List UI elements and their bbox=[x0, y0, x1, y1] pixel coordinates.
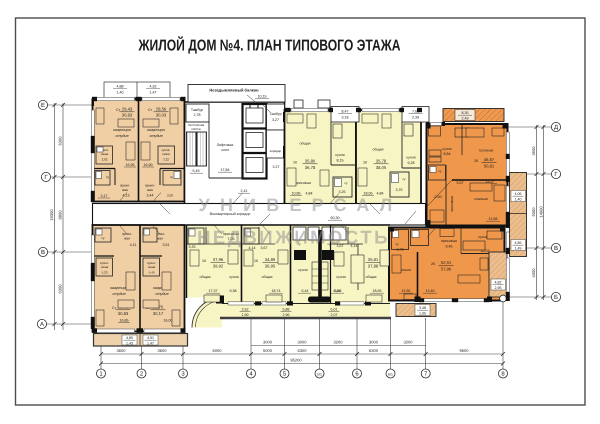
svg-text:1,05: 1,05 bbox=[419, 312, 426, 316]
svg-text:28,56: 28,56 bbox=[156, 107, 167, 112]
svg-text:30,83: 30,83 bbox=[122, 113, 133, 118]
svg-text:ниша: ниша bbox=[101, 152, 109, 156]
svg-text:Д: Д bbox=[554, 124, 558, 131]
svg-text:Тамбур: Тамбур bbox=[269, 112, 281, 116]
svg-text:17,37: 17,37 bbox=[209, 289, 218, 293]
svg-text:3,44: 3,44 bbox=[147, 194, 154, 198]
svg-text:5,07: 5,07 bbox=[457, 181, 464, 185]
svg-text:46,87: 46,87 bbox=[484, 157, 495, 162]
svg-text:30,17: 30,17 bbox=[153, 311, 164, 316]
svg-text:3000: 3000 bbox=[369, 340, 379, 345]
svg-text:5000: 5000 bbox=[263, 348, 273, 353]
svg-text:кухня: кухня bbox=[442, 147, 451, 151]
svg-text:кухня: кухня bbox=[336, 275, 345, 279]
svg-text:2,49: 2,49 bbox=[462, 117, 469, 121]
svg-text:2,41: 2,41 bbox=[241, 189, 248, 193]
svg-text:29,43: 29,43 bbox=[122, 107, 133, 112]
svg-text:прихожая: прихожая bbox=[441, 239, 457, 243]
svg-text:19300: 19300 bbox=[49, 209, 54, 221]
svg-text:6/1: 6/1 bbox=[388, 373, 393, 377]
svg-text:13,40: 13,40 bbox=[426, 289, 435, 293]
svg-text:3,26: 3,26 bbox=[339, 190, 346, 194]
svg-text:30,03: 30,03 bbox=[156, 113, 167, 118]
svg-text:2,82: 2,82 bbox=[102, 158, 108, 162]
svg-text:3,22: 3,22 bbox=[163, 158, 169, 162]
svg-text:кухня: кухня bbox=[298, 268, 307, 272]
svg-text:1,43: 1,43 bbox=[126, 342, 133, 346]
svg-text:су: су bbox=[106, 175, 110, 179]
svg-text:6000: 6000 bbox=[531, 207, 536, 217]
svg-text:3000: 3000 bbox=[298, 340, 308, 345]
svg-text:18,65: 18,65 bbox=[373, 289, 382, 293]
svg-text:6,01: 6,01 bbox=[331, 308, 338, 312]
svg-text:9,46: 9,46 bbox=[446, 245, 453, 249]
svg-text:4,92: 4,92 bbox=[150, 85, 157, 89]
svg-text:6300: 6300 bbox=[58, 284, 63, 294]
svg-text:4,85: 4,85 bbox=[515, 241, 522, 245]
svg-text:Тамбур: Тамбур bbox=[191, 108, 203, 112]
svg-text:2,78: 2,78 bbox=[194, 113, 201, 117]
svg-text:5,49: 5,49 bbox=[149, 271, 155, 275]
svg-text:жая: жая bbox=[124, 237, 130, 241]
svg-text:3,17: 3,17 bbox=[101, 194, 108, 198]
svg-text:Лифтовая: Лифтовая bbox=[217, 143, 234, 147]
svg-text:5,49: 5,49 bbox=[193, 169, 200, 173]
svg-text:3600: 3600 bbox=[117, 348, 127, 353]
svg-text:11,58: 11,58 bbox=[489, 217, 498, 221]
svg-text:4,85: 4,85 bbox=[126, 336, 133, 340]
svg-text:4,05: 4,05 bbox=[515, 192, 522, 196]
svg-text:95200: 95200 bbox=[290, 358, 302, 363]
svg-text:4,82: 4,82 bbox=[495, 281, 502, 285]
svg-text:6,44: 6,44 bbox=[302, 289, 309, 293]
svg-text:3200: 3200 bbox=[404, 340, 414, 345]
svg-text:кухня: кухня bbox=[478, 235, 487, 239]
svg-text:3000: 3000 bbox=[263, 340, 273, 345]
svg-text:4600: 4600 bbox=[531, 146, 536, 156]
svg-text:9,38: 9,38 bbox=[230, 289, 237, 293]
svg-text:3600: 3600 bbox=[158, 348, 168, 353]
svg-text:ЖИЛОЙ ДОМ №4. ПЛАН ТИПОВОГО: ЖИЛОЙ ДОМ №4. ПЛАН ТИПОВОГО ЭТАЖА bbox=[138, 35, 401, 54]
svg-text:3,27: 3,27 bbox=[273, 165, 280, 169]
svg-text:35,78: 35,78 bbox=[376, 159, 387, 164]
svg-text:4,11: 4,11 bbox=[130, 243, 137, 247]
svg-text:В: В bbox=[41, 249, 45, 256]
svg-text:6000: 6000 bbox=[213, 348, 223, 353]
svg-text:34,89: 34,89 bbox=[265, 257, 276, 262]
svg-text:4,91: 4,91 bbox=[147, 336, 154, 340]
svg-text:37,88: 37,88 bbox=[368, 263, 379, 268]
svg-text:8,15: 8,15 bbox=[337, 159, 344, 163]
svg-text:студия: студия bbox=[112, 292, 125, 296]
svg-text:-2,60-: -2,60- bbox=[433, 195, 443, 199]
svg-text:3,18: 3,18 bbox=[342, 116, 349, 120]
svg-text:4,88: 4,88 bbox=[117, 85, 124, 89]
svg-text:2,39: 2,39 bbox=[412, 116, 419, 120]
svg-text:1,90: 1,90 bbox=[242, 313, 249, 317]
svg-text:1,49: 1,49 bbox=[515, 247, 522, 251]
svg-text:36,78: 36,78 bbox=[305, 165, 316, 170]
svg-text:ниша: ниша bbox=[162, 152, 170, 156]
svg-text:прихожая: прихожая bbox=[295, 181, 311, 185]
svg-text:общая: общая bbox=[366, 275, 377, 279]
svg-text:1,47: 1,47 bbox=[147, 342, 154, 346]
svg-text:В: В bbox=[554, 245, 558, 252]
svg-text:общая: общая bbox=[262, 275, 273, 279]
svg-text:кухня: кухня bbox=[229, 275, 238, 279]
svg-text:17,84: 17,84 bbox=[221, 168, 230, 172]
svg-text:3,76: 3,76 bbox=[396, 188, 403, 192]
svg-text:6300: 6300 bbox=[58, 136, 63, 146]
svg-text:8,84: 8,84 bbox=[444, 152, 451, 156]
svg-text:4300: 4300 bbox=[531, 268, 536, 278]
svg-text:30,83: 30,83 bbox=[118, 311, 129, 316]
svg-text:1,47: 1,47 bbox=[150, 91, 157, 95]
svg-text:2,07: 2,07 bbox=[331, 313, 338, 317]
svg-text:6300: 6300 bbox=[369, 348, 379, 353]
svg-text:су: су bbox=[403, 177, 407, 181]
svg-text:8,35: 8,35 bbox=[462, 111, 469, 115]
svg-text:общая: общая bbox=[200, 275, 211, 279]
svg-text:35,80: 35,80 bbox=[305, 159, 316, 164]
svg-text:2,00: 2,00 bbox=[167, 194, 173, 198]
svg-text:1,40: 1,40 bbox=[117, 91, 124, 95]
svg-text:16,85: 16,85 bbox=[120, 319, 129, 323]
svg-text:5/1: 5/1 bbox=[317, 373, 322, 377]
svg-text:6300: 6300 bbox=[298, 348, 308, 353]
svg-text:37,96: 37,96 bbox=[213, 257, 224, 262]
svg-text:8,47: 8,47 bbox=[342, 110, 349, 114]
svg-text:клетка: клетка bbox=[191, 127, 200, 131]
svg-text:10,15: 10,15 bbox=[258, 95, 267, 99]
svg-text:общая: общая bbox=[373, 148, 384, 152]
svg-text:50,81: 50,81 bbox=[484, 163, 495, 168]
svg-text:36,95: 36,95 bbox=[265, 263, 276, 268]
svg-text:3,27: 3,27 bbox=[272, 118, 279, 122]
svg-text:1,40: 1,40 bbox=[515, 198, 522, 202]
svg-text:2,96: 2,96 bbox=[283, 313, 290, 317]
svg-text:А: А bbox=[40, 321, 44, 328]
svg-text:5,20: 5,20 bbox=[102, 271, 108, 275]
svg-text:прихо-: прихо- bbox=[145, 184, 155, 188]
svg-text:60,30: 60,30 bbox=[331, 216, 340, 220]
svg-text:су: су bbox=[439, 169, 443, 173]
svg-text:квартира: квартира bbox=[147, 128, 164, 132]
svg-text:Ст: Ст bbox=[112, 306, 117, 310]
svg-text:4,13: 4,13 bbox=[123, 194, 130, 198]
svg-text:3,61: 3,61 bbox=[163, 243, 170, 247]
svg-text:Б: Б bbox=[554, 294, 558, 301]
svg-text:студия: студия bbox=[149, 134, 162, 138]
svg-text:6,44: 6,44 bbox=[334, 289, 341, 293]
svg-text:16,00: 16,00 bbox=[164, 319, 173, 323]
svg-text:студия: студия bbox=[115, 134, 128, 138]
svg-text:жая: жая bbox=[147, 188, 153, 192]
svg-text:8800: 8800 bbox=[58, 210, 63, 220]
svg-text:кухня: кухня bbox=[406, 156, 415, 160]
svg-text:прихо-: прихо- bbox=[120, 184, 130, 188]
svg-text:су: су bbox=[345, 181, 349, 185]
svg-text:су: су bbox=[102, 236, 106, 240]
svg-text:жая: жая bbox=[157, 237, 163, 241]
svg-text:16,95: 16,95 bbox=[126, 163, 135, 167]
svg-text:Ст: Ст bbox=[148, 108, 153, 112]
svg-text:жая: жая bbox=[122, 188, 128, 192]
svg-text:общая: общая bbox=[300, 142, 311, 146]
svg-text:ниша: ниша bbox=[148, 265, 156, 269]
svg-text:спальня: спальня bbox=[474, 197, 488, 201]
svg-text:11,56: 11,56 bbox=[402, 289, 411, 293]
svg-text:2,73: 2,73 bbox=[397, 248, 404, 252]
svg-text:НЕДВИЖИМОСТЬ: НЕДВИЖИМОСТЬ bbox=[197, 227, 390, 248]
svg-text:9,28: 9,28 bbox=[408, 161, 415, 165]
svg-text:2,95: 2,95 bbox=[495, 286, 502, 290]
svg-text:квартира: квартира bbox=[113, 128, 130, 132]
svg-text:35,81: 35,81 bbox=[368, 257, 379, 262]
svg-text:3,25: 3,25 bbox=[189, 245, 196, 249]
svg-text:3,48: 3,48 bbox=[419, 306, 426, 310]
svg-text:14000: 14000 bbox=[539, 206, 544, 218]
svg-text:ниша: ниша bbox=[101, 265, 109, 269]
svg-text:Ст: Ст bbox=[116, 108, 121, 112]
svg-text:16,90: 16,90 bbox=[144, 163, 153, 167]
svg-text:УНИВЕРСАЛ: УНИВЕРСАЛ bbox=[199, 195, 403, 215]
svg-text:гостиная: гостиная bbox=[479, 149, 494, 153]
svg-text:су: су bbox=[396, 242, 400, 246]
svg-text:кухня: кухня bbox=[335, 153, 344, 157]
svg-text:57,96: 57,96 bbox=[441, 266, 452, 271]
svg-text:9600: 9600 bbox=[460, 348, 470, 353]
svg-text:18,74: 18,74 bbox=[272, 289, 281, 293]
svg-text:прихожая: прихожая bbox=[450, 196, 454, 212]
svg-text:52,51: 52,51 bbox=[441, 260, 452, 265]
svg-text:5,88: 5,88 bbox=[283, 308, 290, 312]
svg-text:Незадымляемый балкон: Незадымляемый балкон bbox=[209, 88, 259, 93]
svg-text:2,62: 2,62 bbox=[242, 308, 249, 312]
svg-text:3200: 3200 bbox=[334, 340, 344, 345]
svg-text:Е: Е bbox=[41, 102, 45, 109]
svg-text:су: су bbox=[170, 175, 174, 179]
svg-text:39,92: 39,92 bbox=[213, 263, 224, 268]
svg-text:студия: студия bbox=[155, 292, 168, 296]
svg-text:холл: холл bbox=[221, 148, 229, 152]
svg-text:коридор: коридор bbox=[270, 149, 282, 153]
svg-text:38,05: 38,05 bbox=[376, 165, 387, 170]
svg-text:квартира: квартира bbox=[110, 286, 127, 290]
